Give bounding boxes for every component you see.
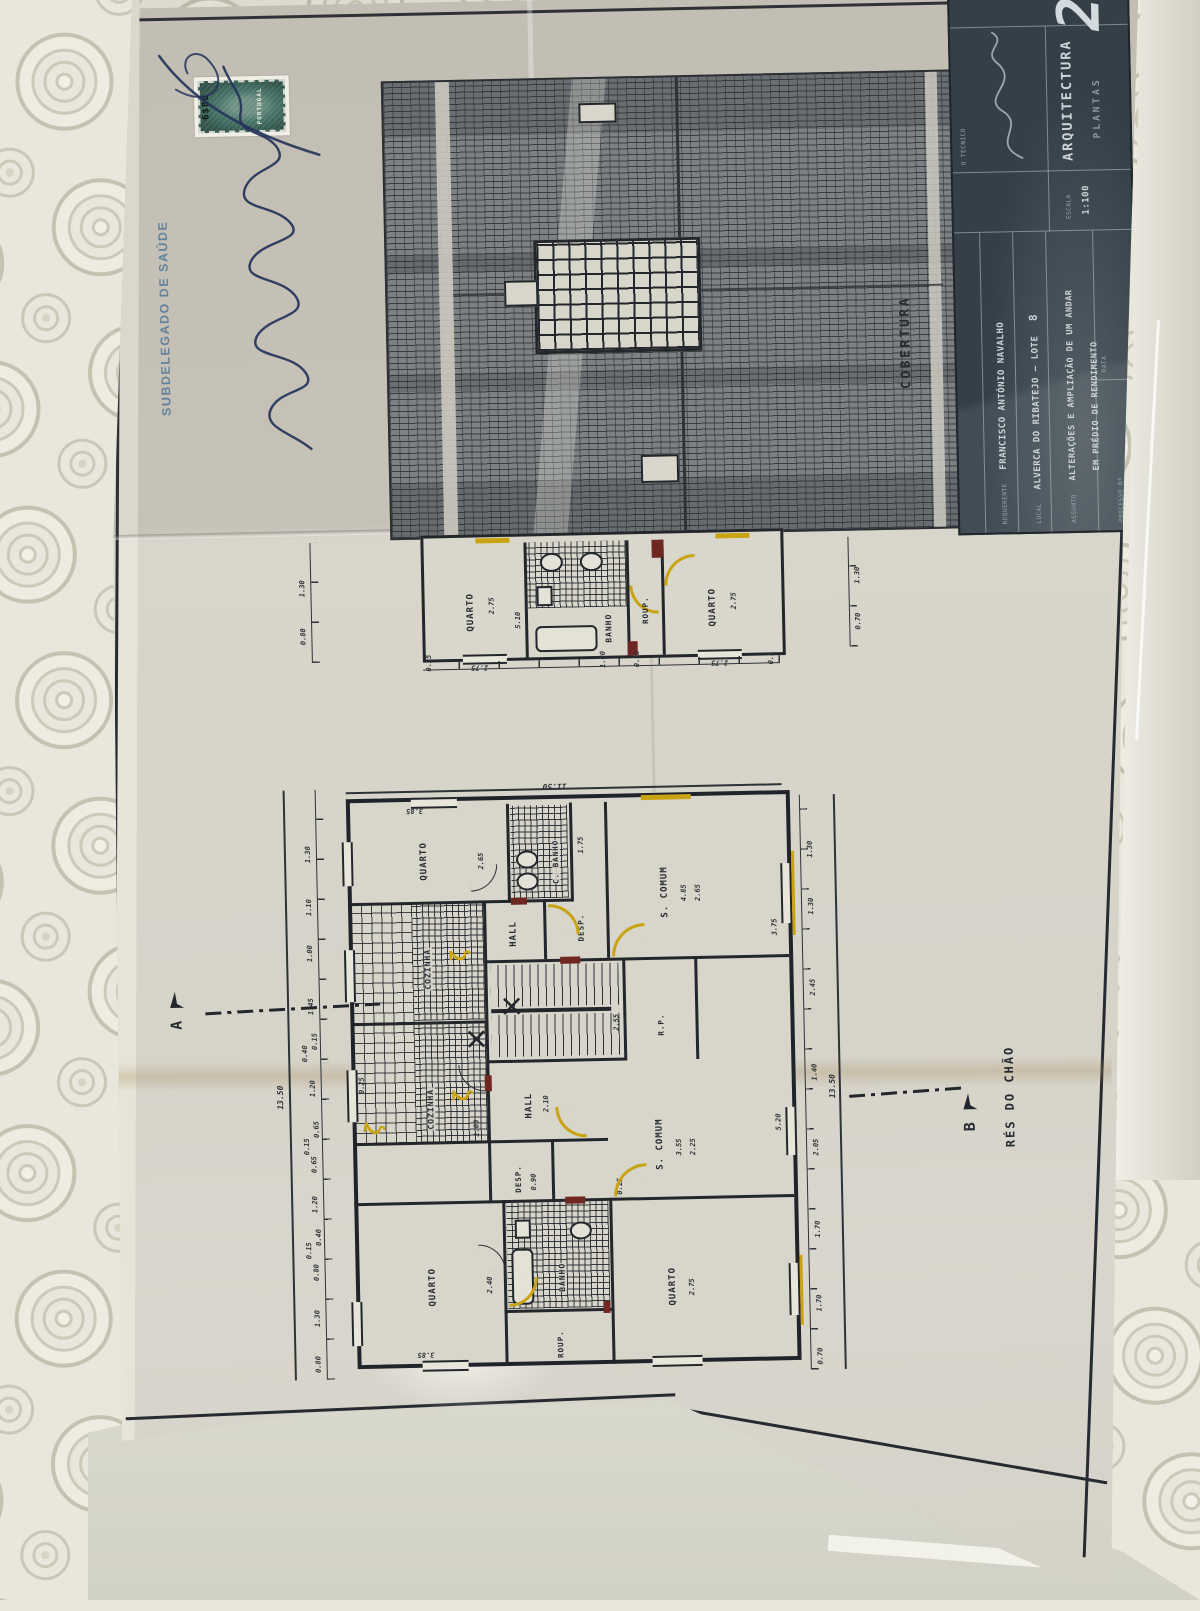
roof-hatch-notch bbox=[578, 102, 616, 123]
room-label-quarto: QUARTO bbox=[420, 842, 430, 881]
room-label-roup: ROUP. bbox=[557, 1330, 565, 1358]
local-label: LOCAL bbox=[1036, 503, 1043, 524]
content-type: PLANTAS bbox=[1091, 77, 1103, 138]
data-label: DATA bbox=[1101, 356, 1108, 373]
ground-plan-caption-text: RÉS DO CHÃO bbox=[1002, 1046, 1018, 1148]
dim-label: 0.80 bbox=[314, 1264, 321, 1281]
bathtub bbox=[535, 625, 598, 652]
dim-label: 2.40 bbox=[487, 1276, 494, 1293]
altered-window bbox=[641, 794, 691, 800]
dim-label: 2.75 bbox=[471, 663, 488, 670]
room-label-quarto: QUARTO bbox=[708, 588, 718, 627]
stamp-signature-area: SUBDELEGADO DE SAÚDE 6$00 PORTUGAL bbox=[135, 24, 355, 488]
dim-label: 0.80 bbox=[315, 1356, 322, 1373]
roof-eave-strip-right bbox=[925, 72, 947, 527]
dim-label: 0.15 bbox=[304, 1138, 311, 1155]
room-label-desp: DESP. bbox=[514, 1165, 522, 1193]
window bbox=[342, 842, 354, 886]
dim-label: 1.75 bbox=[578, 836, 585, 853]
dim-label: 0.40 bbox=[302, 1045, 309, 1062]
altered-window-sill bbox=[791, 851, 796, 935]
dim-chain bbox=[315, 790, 335, 1380]
section-marker-a-letter: A bbox=[167, 1020, 185, 1030]
local-value: ALVERCA DO RIBATEJO — LOTE bbox=[1030, 336, 1043, 490]
section-marker-b-letter: B bbox=[961, 1121, 979, 1131]
dim-label: 1.30 bbox=[305, 846, 312, 863]
window bbox=[785, 1107, 797, 1155]
scale-label: ESCALA bbox=[1065, 194, 1073, 219]
section-arrow-icon bbox=[961, 1091, 979, 1111]
title-block: REQUERENTE FRANCISCO ANTÓNIO NAVALHO LOC… bbox=[947, 0, 1140, 535]
roof-eave-strip-left bbox=[435, 82, 459, 537]
ground-floor-plan: 13.50 0.80 1.30 0.80 0.15 0.40 1.20 0.65… bbox=[260, 764, 873, 1396]
new-wall-patch bbox=[511, 898, 527, 905]
dim-label: 0.15 bbox=[634, 650, 641, 667]
room-label-scomum: S. COMUM bbox=[660, 866, 670, 918]
sheet-number: 2 bbox=[1049, 0, 1108, 31]
room-label-cozinha: COZINHA bbox=[427, 1088, 436, 1131]
assunto-row: ASSUNTO ALTERAÇÕES E AMPLIAÇÃO DE UM AND… bbox=[1053, 232, 1107, 523]
altered-window-sill bbox=[799, 1255, 803, 1325]
room-label-banho: BANHO bbox=[605, 614, 614, 643]
room-label-cbanho: C. BANHO bbox=[552, 840, 560, 884]
dim-label: 2.10 bbox=[543, 1095, 550, 1112]
stair-flight bbox=[491, 1013, 620, 1058]
dim-label: 5.20 bbox=[775, 1113, 782, 1130]
new-wall-patch bbox=[560, 956, 580, 963]
sink bbox=[515, 1220, 531, 1239]
window bbox=[351, 1302, 363, 1346]
dim-label: 3.75 bbox=[771, 918, 778, 935]
flue-symbol: ζ bbox=[452, 1088, 474, 1102]
ground-plan-caption: RÉS DO CHÃO bbox=[997, 1024, 1022, 1169]
dim-label: 1.20 bbox=[310, 1080, 317, 1097]
assunto-value-line1: ALTERAÇÕES E AMPLIAÇÃO DE UM ANDAR bbox=[1064, 289, 1078, 480]
dim-label: 1.30 bbox=[807, 841, 814, 858]
dim-label: 0.65 bbox=[314, 1121, 321, 1138]
dim-label: 3.55 bbox=[676, 1138, 683, 1155]
dim-label: 2.45 bbox=[810, 979, 817, 996]
dim-label: 1.40 bbox=[811, 1064, 818, 1081]
new-wall-patch bbox=[603, 1301, 610, 1313]
requerente-value: FRANCISCO ANTÓNIO NAVALHO bbox=[996, 322, 1009, 470]
new-wall-patch bbox=[565, 1196, 585, 1203]
photo-of-architectural-plan: { "colors":{"accent_yellow":"#c9a312","a… bbox=[0, 0, 1200, 1600]
room-label-cozinha: COZINHA bbox=[424, 948, 433, 991]
technician-signature bbox=[968, 26, 1041, 167]
dim-label: 0.1 bbox=[768, 652, 775, 665]
window bbox=[411, 797, 457, 809]
dim-label: 1.00 bbox=[474, 1120, 481, 1137]
new-wall-patch bbox=[651, 540, 663, 558]
roof-chimney-2 bbox=[641, 454, 680, 483]
dim-label: 2.65 bbox=[695, 884, 702, 901]
dim-label: 1.30 bbox=[299, 580, 306, 597]
altered-window bbox=[475, 538, 509, 544]
dim-label: 5.10 bbox=[515, 612, 522, 629]
section-marker-a: A bbox=[166, 989, 201, 1030]
room-label-scomum: S. COMUM bbox=[656, 1118, 666, 1170]
dim-chain bbox=[309, 543, 320, 663]
new-wall-patch bbox=[485, 1075, 492, 1091]
roof-plan-caption-text: COBERTURA bbox=[897, 296, 914, 389]
room-label-hall: HALL bbox=[509, 921, 519, 947]
dim-label: 2.25 bbox=[690, 1138, 697, 1155]
window bbox=[344, 950, 356, 1002]
dim-label: 0.40 bbox=[316, 1229, 323, 1246]
altered-window bbox=[715, 533, 749, 539]
dim-label: 1.70 bbox=[816, 1295, 823, 1312]
signature-ink bbox=[135, 24, 355, 488]
dim-label: 2.05 bbox=[813, 1139, 820, 1156]
dim-label: 0.15 bbox=[306, 1242, 313, 1259]
dim-label: 0.15 bbox=[312, 1033, 319, 1050]
dim-label: 1.10 bbox=[306, 899, 313, 916]
upper-floor-plan: 0.80 1.30 QUARTO 2.75 BANHO 5.10 ROUP. Q… bbox=[295, 521, 878, 673]
roof-plan bbox=[381, 69, 964, 540]
section-arrow-icon bbox=[167, 990, 185, 1010]
drawing-sheet: SUBDELEGADO DE SAÚDE 6$00 PORTUGAL COBER… bbox=[0, 0, 1200, 1611]
flue-symbol: ζ bbox=[449, 948, 471, 962]
dim-label: 1.20 bbox=[312, 1196, 319, 1213]
stair-cross-mark: × bbox=[497, 993, 528, 1019]
dim-label: 1.30 bbox=[314, 1310, 321, 1327]
roof-skylight bbox=[533, 237, 702, 354]
dim-label: 1.70 bbox=[815, 1221, 822, 1238]
roof-plan-caption: COBERTURA bbox=[893, 272, 920, 412]
dim-label: 2.75 bbox=[489, 597, 496, 614]
roof-chimney-1 bbox=[504, 280, 539, 307]
room-label-rp: R.P. bbox=[657, 1014, 665, 1036]
dim-label: 1.30 bbox=[808, 898, 815, 915]
room-label-quarto: QUARTO bbox=[466, 593, 476, 632]
room-label-roup: ROUP. bbox=[642, 596, 650, 624]
stair-cross-mark: × bbox=[462, 1026, 493, 1052]
dim-total-label: 13.50 bbox=[277, 1086, 286, 1110]
dim-label: 0.90 bbox=[531, 1173, 538, 1190]
room-label-banho: BANHO bbox=[559, 1263, 568, 1292]
dim-total-label: 11.50 bbox=[542, 782, 566, 791]
dim-total-label: 13.50 bbox=[829, 1074, 838, 1098]
requerente-label: REQUERENTE bbox=[1001, 483, 1009, 524]
local-lot-number: 8 bbox=[1027, 314, 1040, 321]
dim-label: 0.70 bbox=[817, 1348, 824, 1365]
dim-label: 2.75 bbox=[689, 1278, 696, 1295]
dim-label: 0.70 bbox=[855, 613, 862, 630]
room-label-quarto: QUARTO bbox=[429, 1268, 439, 1307]
dim-chain bbox=[847, 537, 857, 647]
sink bbox=[536, 586, 552, 606]
dim-label: 0.25 bbox=[359, 1077, 366, 1094]
dim-label: 2.55 bbox=[613, 1014, 620, 1031]
dim-label: 2.75 bbox=[711, 658, 728, 665]
dim-label: 0.25 bbox=[426, 655, 433, 672]
dim-label: 1.30 bbox=[854, 567, 861, 584]
section-marker-b: B bbox=[959, 1089, 994, 1132]
dim-label: 4.85 bbox=[681, 884, 688, 901]
window bbox=[653, 1355, 703, 1367]
dim-label: 3.85 bbox=[417, 1351, 434, 1358]
dim-label: 0.80 bbox=[300, 628, 307, 645]
dim-label: 0.65 bbox=[311, 1156, 318, 1173]
window bbox=[423, 1360, 469, 1372]
room-label-quarto: QUARTO bbox=[669, 1267, 679, 1306]
dim-label: 1.00 bbox=[600, 651, 607, 668]
dim-label: 2.75 bbox=[731, 592, 738, 609]
assunto-label: ASSUNTO bbox=[1071, 494, 1079, 523]
scale-value: 1:100 bbox=[1081, 185, 1092, 215]
technician-label: O TÉCNICO bbox=[960, 128, 968, 165]
room-label-hall: HALL bbox=[525, 1093, 535, 1119]
window bbox=[346, 1070, 358, 1122]
dim-label: 1.00 bbox=[307, 945, 314, 962]
discipline-title: ARQUITECTURA bbox=[1058, 39, 1077, 161]
